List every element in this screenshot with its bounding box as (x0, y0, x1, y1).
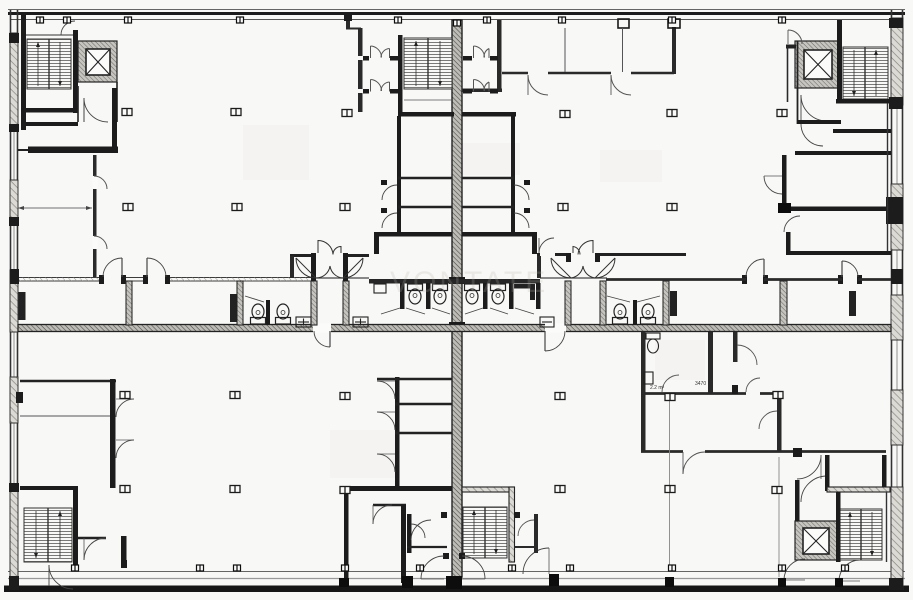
svg-text:3470: 3470 (695, 381, 706, 387)
svg-text:2.2 m²: 2.2 m² (650, 385, 665, 391)
svg-text:VONTATE: VONTATE (390, 266, 548, 299)
